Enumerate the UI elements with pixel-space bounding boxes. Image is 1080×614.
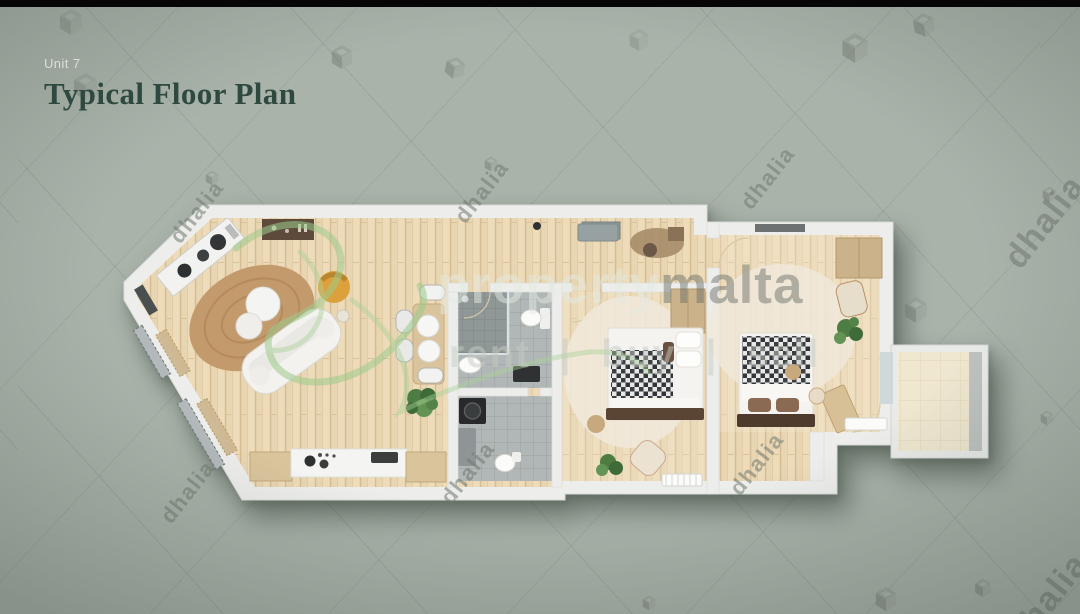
top-bar [0,0,1080,7]
pouf [587,415,605,433]
unit-label: Unit 7 [44,56,296,71]
ceiling-lamp [533,222,541,230]
bathroom [458,292,552,388]
toilet [521,310,541,326]
shower-room [458,396,552,481]
header: Unit 7 Typical Floor Plan [44,56,296,112]
toilet-tank [540,308,550,329]
side-table [337,310,349,322]
balcony-railing [969,352,982,451]
double-bed-master [737,333,815,427]
radiator-master [845,418,887,430]
shower-head [462,296,469,303]
page-title: Typical Floor Plan [44,76,296,112]
cabinet [458,428,476,466]
kitchen-run [250,449,446,482]
balcony [891,345,988,458]
double-bed [606,328,704,420]
pouf-master [785,364,801,380]
corridor-bench [578,224,618,241]
balcony-glass-door [880,352,893,404]
desk-chair [809,388,825,404]
slide: dhalia dhalia dhalia dhalia dhalia dhali… [0,0,1080,614]
window-master [755,224,805,232]
sink [459,357,481,373]
